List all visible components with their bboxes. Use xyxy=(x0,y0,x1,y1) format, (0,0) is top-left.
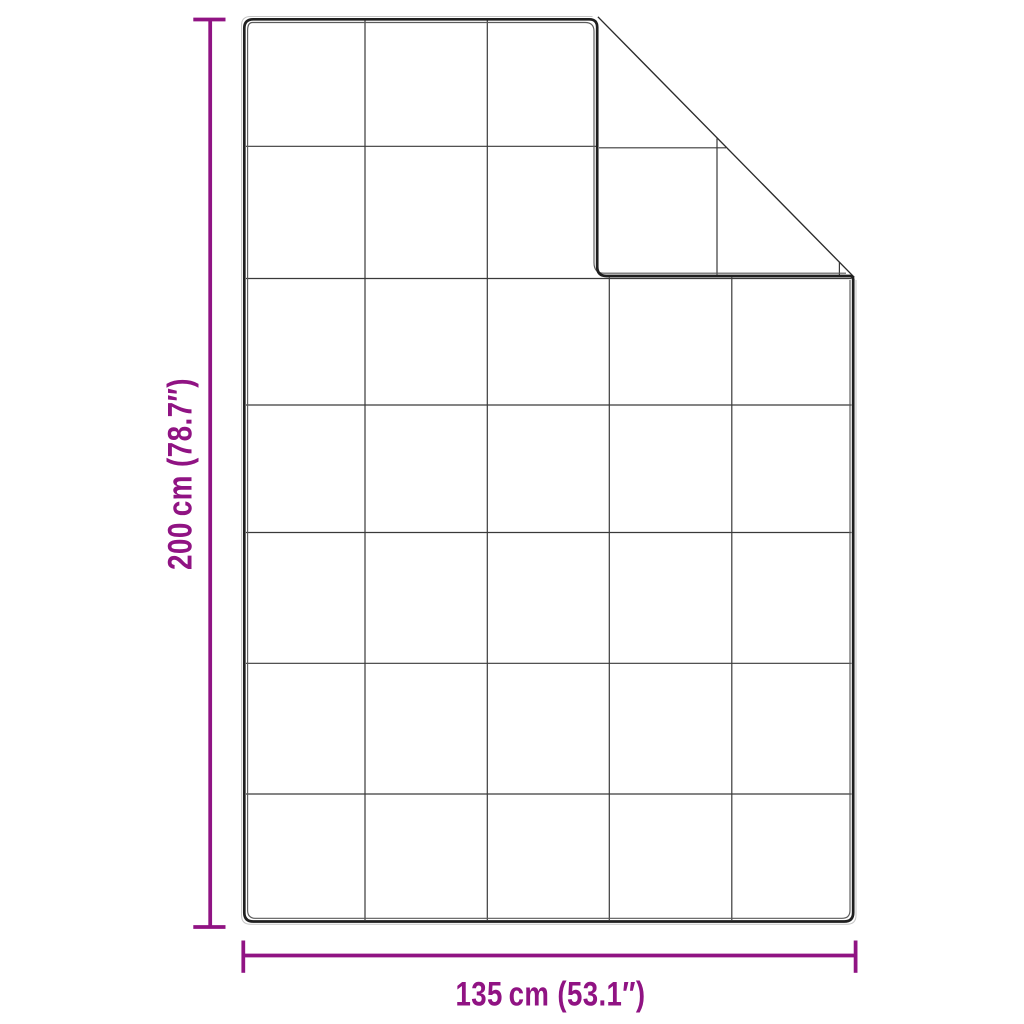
svg-text:135 cm (53.1″): 135 cm (53.1″) xyxy=(456,976,646,1014)
svg-text:200 cm (78.7″): 200 cm (78.7″) xyxy=(162,378,200,570)
